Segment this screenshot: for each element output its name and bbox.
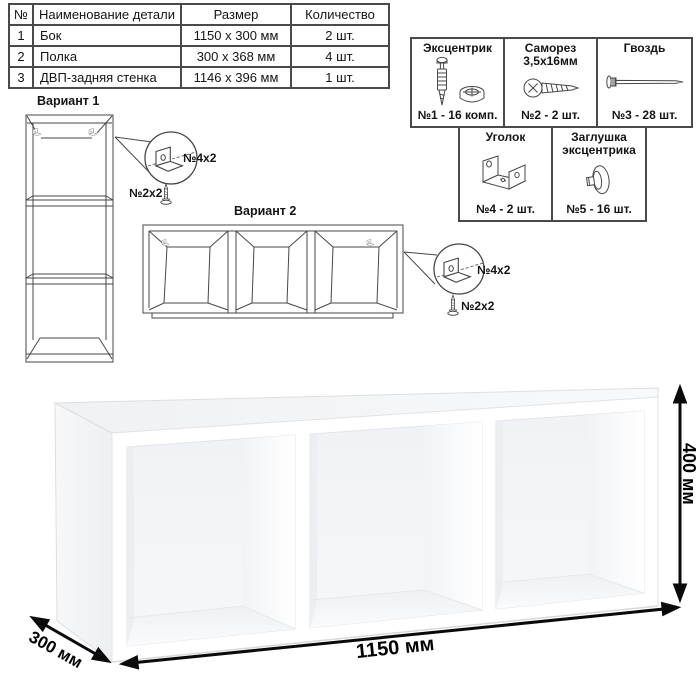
hardware-count: №2 - 2 шт. bbox=[521, 108, 580, 122]
cam-cap-icon bbox=[584, 157, 614, 202]
part-name: Бок bbox=[33, 25, 181, 46]
part-quantity: 1 шт. bbox=[291, 67, 389, 88]
parts-table: № Наименование детали Размер Количество … bbox=[8, 3, 390, 89]
col-part-name: Наименование детали bbox=[33, 4, 181, 25]
nail-icon bbox=[605, 55, 685, 108]
hardware-subtitle: 3,5х16мм bbox=[523, 55, 577, 68]
hardware-subtitle: эксцентрика bbox=[562, 144, 636, 157]
assembly-instruction-sheet: № Наименование детали Размер Количество … bbox=[0, 0, 700, 690]
corner-bracket-icon bbox=[480, 144, 532, 202]
table-row: 1 Бок 1150 x 300 мм 2 шт. bbox=[9, 25, 389, 46]
cabinet-3d-render bbox=[55, 388, 658, 662]
hardware-box-top-row: Эксцентрик № bbox=[410, 37, 693, 128]
part-size: 1146 x 396 мм bbox=[181, 67, 291, 88]
col-size: Размер bbox=[181, 4, 291, 25]
part-number: 3 bbox=[9, 67, 33, 88]
part-number: 2 bbox=[9, 46, 33, 67]
hardware-cell-eccentric: Эксцентрик № bbox=[410, 37, 505, 128]
variant2-drawing bbox=[143, 225, 403, 318]
part-quantity: 4 шт. bbox=[291, 46, 389, 67]
screw-icon bbox=[448, 295, 458, 315]
part-size: 1150 x 300 мм bbox=[181, 25, 291, 46]
hardware-count: №4 - 2 шт. bbox=[476, 202, 535, 216]
part-number: 1 bbox=[9, 25, 33, 46]
hardware-box-bottom-row: Уголок №4 - 2 шт. Заглушка эксцентрика bbox=[458, 126, 647, 222]
hardware-count: №1 - 16 комп. bbox=[418, 108, 498, 122]
part-size: 300 x 368 мм bbox=[181, 46, 291, 67]
part-quantity: 2 шт. bbox=[291, 25, 389, 46]
screw-icon bbox=[522, 68, 580, 108]
col-number: № bbox=[9, 4, 33, 25]
hardware-cell-screw: Саморез 3,5х16мм №2 - 2 шт. bbox=[503, 37, 598, 128]
hardware-title: Гвоздь bbox=[624, 42, 666, 55]
variant1-title: Вариант 1 bbox=[37, 94, 99, 108]
part-name: ДВП-задняя стенка bbox=[33, 67, 181, 88]
variant1-bracket-label: №4х2 bbox=[183, 151, 216, 165]
parts-table-header-row: № Наименование детали Размер Количество bbox=[9, 4, 389, 25]
table-row: 2 Полка 300 x 368 мм 4 шт. bbox=[9, 46, 389, 67]
hardware-cell-cap: Заглушка эксцентрика №5 - 16 шт. bbox=[551, 126, 647, 222]
variant2-bracket-label: №4х2 bbox=[477, 263, 510, 277]
part-name: Полка bbox=[33, 46, 181, 67]
hardware-title: Уголок bbox=[486, 131, 526, 144]
height-dimension-label: 400 мм bbox=[678, 443, 699, 505]
col-quantity: Количество bbox=[291, 4, 389, 25]
cam-bolt-and-lock-icon bbox=[427, 55, 489, 108]
hardware-cell-bracket: Уголок №4 - 2 шт. bbox=[458, 126, 553, 222]
variant2-screw-label: №2х2 bbox=[461, 299, 494, 313]
variant1-drawing bbox=[26, 115, 113, 362]
variant2-title: Вариант 2 bbox=[234, 204, 296, 218]
variant1-screw-label: №2х2 bbox=[129, 186, 162, 200]
hardware-cell-nail: Гвоздь №3 - 28 шт. bbox=[596, 37, 693, 128]
hardware-count: №5 - 16 шт. bbox=[566, 202, 632, 216]
table-row: 3 ДВП-задняя стенка 1146 x 396 мм 1 шт. bbox=[9, 67, 389, 88]
hardware-count: №3 - 28 шт. bbox=[612, 108, 678, 122]
hardware-title: Эксцентрик bbox=[423, 42, 492, 55]
